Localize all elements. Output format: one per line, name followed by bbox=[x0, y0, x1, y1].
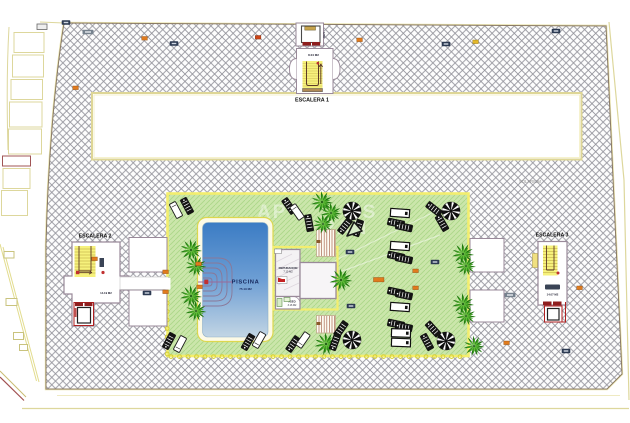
svg-text:ESCALERA 1: ESCALERA 1 bbox=[295, 98, 329, 104]
svg-text:14.07 M2: 14.07 M2 bbox=[547, 293, 559, 297]
svg-text:PISCINA: PISCINA bbox=[232, 280, 260, 286]
svg-text:14.19 M2: 14.19 M2 bbox=[100, 291, 112, 295]
svg-text:75.19 M2: 75.19 M2 bbox=[239, 287, 252, 291]
svg-text:DEPURACION: DEPURACION bbox=[279, 266, 298, 270]
svg-text:7.10 M2: 7.10 M2 bbox=[283, 270, 293, 274]
svg-text:RES: RES bbox=[322, 32, 326, 38]
svg-text:8.04 M2: 8.04 M2 bbox=[308, 53, 319, 57]
svg-text:ESCALERA 2: ESCALERA 2 bbox=[79, 234, 112, 240]
svg-text:ESCALERA 3: ESCALERA 3 bbox=[536, 233, 569, 239]
svg-text:3.16 M2: 3.16 M2 bbox=[288, 304, 297, 307]
svg-text:SOLARIUM: SOLARIUM bbox=[519, 179, 541, 184]
